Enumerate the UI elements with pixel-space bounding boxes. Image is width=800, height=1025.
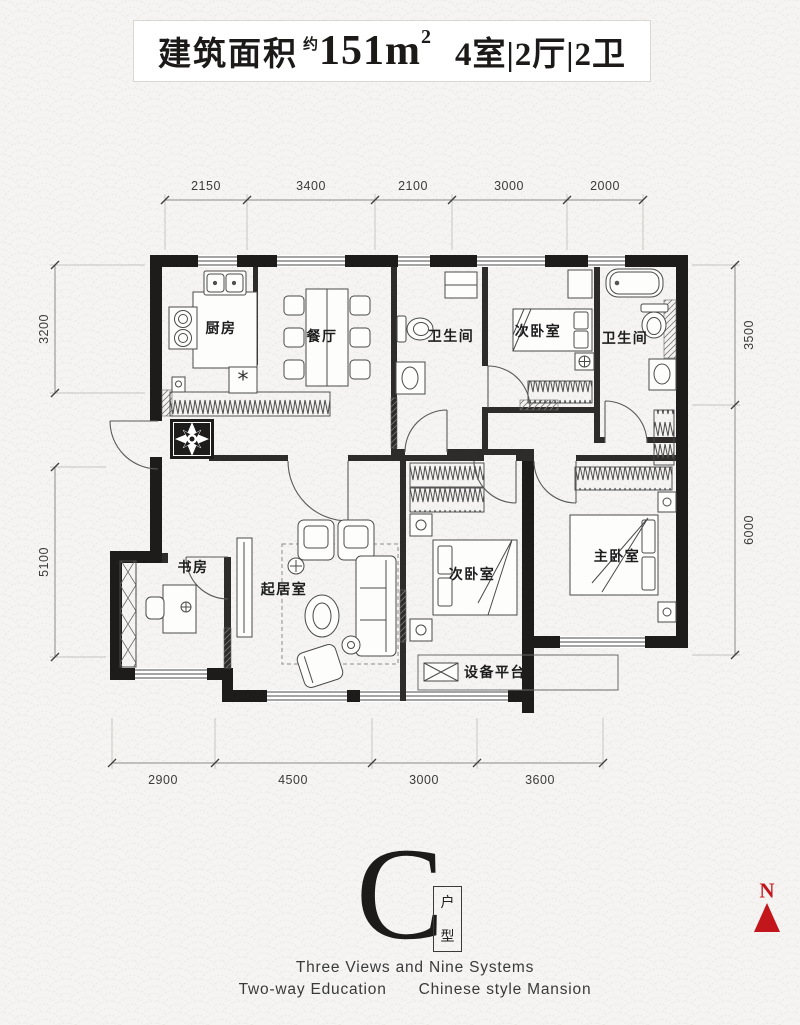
- dim-top-0: 2150: [191, 179, 221, 193]
- room-label-bath2: 卫生间: [602, 328, 649, 348]
- unit-type-char-top: 户: [441, 892, 455, 912]
- tv-cabinet-icon: [237, 538, 252, 637]
- slogan-line2-left: Two-way Education: [239, 981, 387, 998]
- dim-left-0: 3200: [37, 314, 51, 344]
- room-label-study: 书房: [178, 557, 209, 577]
- room-label-master: 主卧室: [594, 546, 641, 566]
- dim-bottom-1: 4500: [278, 773, 308, 787]
- dim-top-1: 3400: [296, 179, 326, 193]
- nightstand-top-icon: [575, 353, 594, 370]
- room-label-kitchen: 厨房: [206, 318, 237, 338]
- dim-bottom-3: 3600: [525, 773, 555, 787]
- desk-chair-icon: [146, 597, 164, 619]
- floor-lamp-icon: [342, 636, 360, 654]
- unit-type-box: 户 型: [433, 886, 462, 952]
- coffee-table-icon: [305, 595, 339, 637]
- room-label-platform: 设备平台: [464, 662, 526, 682]
- hall-basin-icon: [172, 377, 185, 392]
- room-label-living: 起居室: [261, 579, 308, 599]
- unit-letter: C: [356, 843, 444, 946]
- bathtub-icon: [606, 269, 663, 297]
- vanity-1-icon: [396, 362, 425, 394]
- kitchen-sink-icon: [204, 271, 246, 295]
- floor-drain-icon: *: [229, 367, 257, 393]
- dim-bottom-2: 3000: [409, 773, 439, 787]
- svg-text:*: *: [238, 368, 249, 393]
- floorplan-page: *: [0, 0, 800, 1025]
- dim-bottom-0: 2900: [148, 773, 178, 787]
- entrance-star-icon: [170, 419, 214, 459]
- stove-icon: [169, 307, 197, 349]
- room-label-dining: 餐厅: [307, 326, 338, 346]
- title-area-prefix: 建筑面积: [158, 27, 298, 75]
- dim-top-4: 2000: [590, 179, 620, 193]
- slogan-line2-right: Chinese style Mansion: [419, 981, 592, 998]
- title-approx: 约: [303, 33, 318, 54]
- title-area-sup: 2: [421, 26, 431, 49]
- room-label-bath1: 卫生间: [428, 326, 475, 346]
- room-label-bed-top: 次卧室: [515, 321, 562, 341]
- dim-top-3: 3000: [494, 179, 524, 193]
- vanity-2-icon: [649, 359, 676, 390]
- dim-right-0: 3500: [742, 320, 756, 350]
- title-banner: 建筑面积约151m24室|2厅|2卫: [133, 20, 651, 82]
- unit-type-char-bottom: 型: [441, 926, 455, 946]
- plant-icon: [288, 558, 304, 574]
- dim-top-2: 2100: [398, 179, 428, 193]
- bath1-cabinet-icon: [445, 272, 477, 298]
- compass-north-label: N: [759, 879, 774, 904]
- title-area-value: 151m: [319, 27, 421, 75]
- slogan-line1: Three Views and Nine Systems: [180, 959, 650, 977]
- slogan-line2: Two-way EducationChinese style Mansion: [180, 981, 650, 999]
- dim-left-1: 5100: [37, 547, 51, 577]
- room-label-bed-bottom: 次卧室: [449, 564, 496, 584]
- bookcase-icon: [120, 561, 136, 667]
- dim-right-1: 6000: [742, 515, 756, 545]
- desk-icon: [163, 585, 196, 633]
- x-marker-icon: [424, 663, 458, 681]
- sofa-icon: [356, 556, 396, 656]
- title-layout: 4室|2厅|2卫: [455, 27, 626, 75]
